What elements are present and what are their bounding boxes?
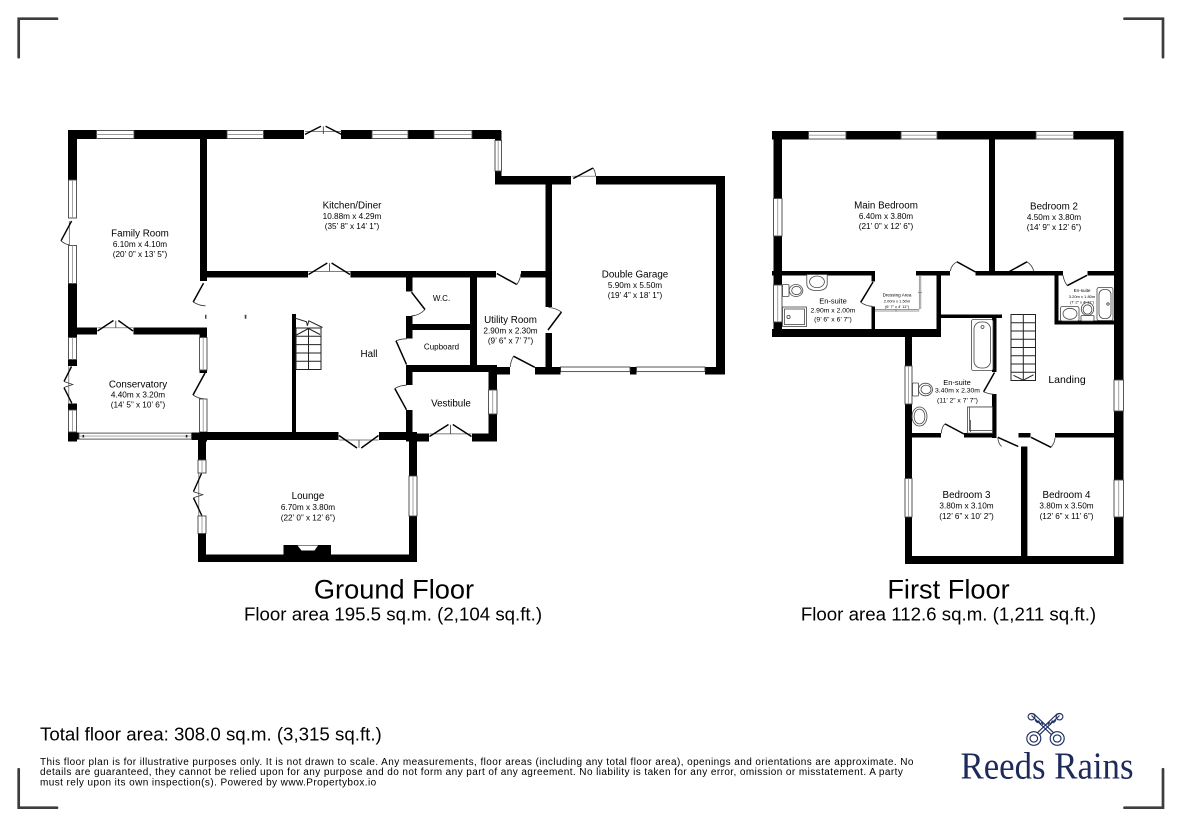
svg-text:Conservatory: Conservatory [109,380,167,391]
svg-text:En-suite: En-suite [1074,288,1091,293]
svg-text:(12’ 6” x 11’ 6”): (12’ 6” x 11’ 6”) [1040,512,1094,521]
svg-text:W.C.: W.C. [433,294,450,303]
svg-text:En-suite: En-suite [943,378,971,387]
svg-text:2.00m x 1.50m: 2.00m x 1.50m [884,299,911,304]
svg-text:(12’ 6” x 10’ 2”): (12’ 6” x 10’ 2”) [939,512,994,521]
svg-text:3.80m x 3.10m: 3.80m x 3.10m [939,502,993,511]
svg-text:(22’ 0” x 12’ 6”): (22’ 0” x 12’ 6”) [281,514,336,523]
svg-text:(19’ 4” x 18’ 1”): (19’ 4” x 18’ 1”) [608,291,663,300]
svg-text:(20’ 0” x 13’ 5”): (20’ 0” x 13’ 5”) [113,250,168,259]
svg-text:Main Bedroom: Main Bedroom [854,201,918,212]
svg-text:Total floor area: 308.0 sq.m.: Total floor area: 308.0 sq.m. (3,315 sq.… [40,724,382,745]
svg-text:(9’ 6” x 6’ 7”): (9’ 6” x 6’ 7”) [814,317,852,324]
svg-text:This floor plan is for illustr: This floor plan is for illustrative purp… [40,757,914,768]
svg-text:Hall: Hall [361,349,378,360]
svg-text:5.90m x 5.50m: 5.90m x 5.50m [608,281,662,290]
svg-text:4.50m x 3.80m: 4.50m x 3.80m [1027,213,1081,222]
svg-text:Dressing Area: Dressing Area [883,293,912,298]
svg-text:6.70m x 3.80m: 6.70m x 3.80m [281,503,335,512]
svg-text:10.88m x 4.29m: 10.88m x 4.29m [323,212,382,221]
svg-text:2.90m x 2.00m: 2.90m x 2.00m [811,308,856,315]
svg-text:First Floor: First Floor [887,574,1009,605]
svg-text:4.40m x 3.20m: 4.40m x 3.20m [111,391,165,400]
svg-text:En-suite: En-suite [819,297,847,306]
svg-text:(7’ 2” x 4’ 11”): (7’ 2” x 4’ 11”) [1070,300,1095,305]
svg-text:Utility Room: Utility Room [484,315,537,326]
svg-text:Floor area 195.5 sq.m. (2,104: Floor area 195.5 sq.m. (2,104 sq.ft.) [244,604,542,625]
svg-text:Vestibule: Vestibule [431,399,471,410]
svg-text:Landing: Landing [1048,374,1086,386]
svg-text:Cupboard: Cupboard [424,343,459,352]
svg-text:Floor area 112.6 sq.m. (1,211: Floor area 112.6 sq.m. (1,211 sq.ft.) [801,604,1096,625]
svg-text:(11’ 2” x 7’ 7”): (11’ 2” x 7’ 7”) [937,398,978,405]
svg-text:6.40m x 3.80m: 6.40m x 3.80m [859,212,913,221]
svg-text:Bedroom 2: Bedroom 2 [1030,202,1078,213]
svg-text:(35’ 8” x 14’ 1”): (35’ 8” x 14’ 1”) [325,222,380,231]
svg-text:Bedroom 4: Bedroom 4 [1043,490,1091,501]
svg-text:Reeds Rains: Reeds Rains [961,746,1134,788]
svg-text:Double Garage: Double Garage [602,270,669,281]
svg-text:Kitchen/Diner: Kitchen/Diner [323,201,383,212]
svg-text:2.90m x 2.30m: 2.90m x 2.30m [483,327,537,336]
svg-text:(9’ 6” x 7’ 7”): (9’ 6” x 7’ 7”) [488,337,534,346]
svg-text:3.80m x 3.50m: 3.80m x 3.50m [1039,502,1093,511]
svg-text:6.10m x 4.10m: 6.10m x 4.10m [113,240,167,249]
svg-text:(21’ 0” x 12’ 6”): (21’ 0” x 12’ 6”) [859,222,914,231]
svg-text:(6’ 7” x 4’ 11”): (6’ 7” x 4’ 11”) [885,304,910,309]
svg-text:Bedroom 3: Bedroom 3 [943,490,991,501]
svg-text:Family Room: Family Room [111,229,169,240]
svg-text:Lounge: Lounge [292,491,325,502]
svg-text:details are guaranteed, they c: details are guaranteed, they cannot be r… [40,767,903,778]
svg-text:(14’ 5” x 10’ 6”): (14’ 5” x 10’ 6”) [111,401,166,410]
svg-text:Ground Floor: Ground Floor [314,574,474,605]
svg-text:must rely upon its own inspect: must rely upon its own inspection(s). Po… [40,778,377,789]
svg-text:3.20m x 1.80m: 3.20m x 1.80m [1069,294,1096,299]
svg-text:3.40m x 2.30m: 3.40m x 2.30m [935,388,980,395]
svg-text:(14’ 9” x 12’ 6”): (14’ 9” x 12’ 6”) [1027,223,1082,232]
